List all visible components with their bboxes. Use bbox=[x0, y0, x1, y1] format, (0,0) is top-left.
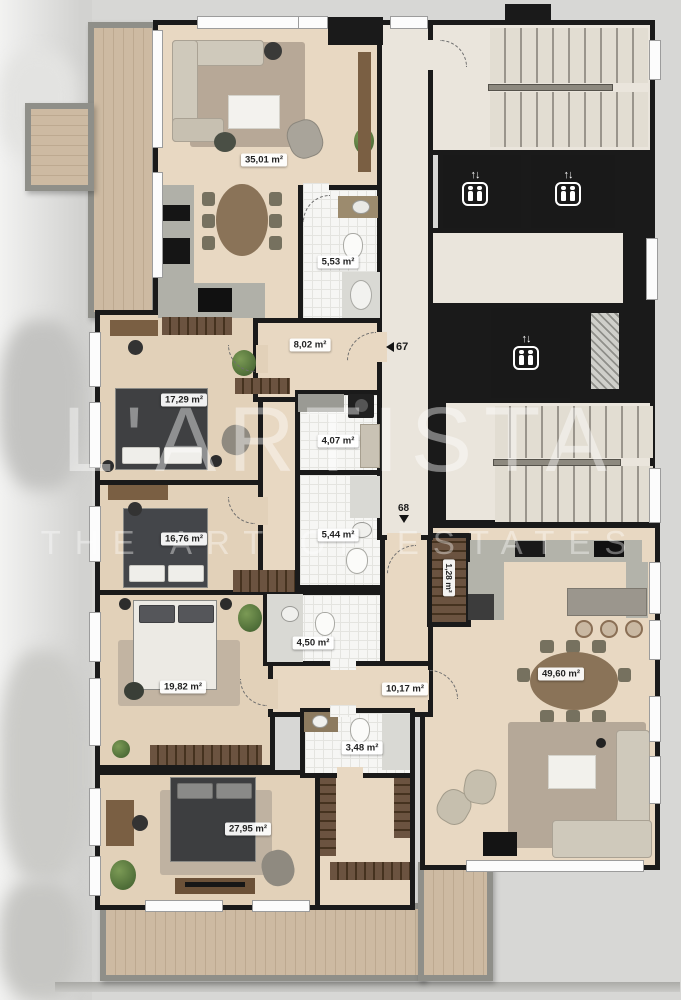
wall-filler bbox=[428, 303, 486, 403]
chair bbox=[540, 640, 554, 653]
person-icon bbox=[570, 191, 575, 201]
kitchen-fridge bbox=[160, 238, 190, 264]
room-area-label: 8,02 m² bbox=[290, 339, 331, 352]
coffee-table bbox=[228, 95, 280, 129]
apartment-68-marker: 68 bbox=[398, 503, 409, 523]
side-table bbox=[264, 42, 282, 60]
pouf bbox=[214, 132, 236, 152]
door-bath68 bbox=[330, 658, 356, 670]
room-area-label: 3,48 m² bbox=[342, 742, 383, 755]
toilet bbox=[315, 612, 335, 636]
shower bbox=[350, 476, 380, 518]
room-area-label: 4,50 m² bbox=[293, 637, 334, 650]
wardrobe bbox=[394, 778, 410, 838]
sideboard bbox=[358, 52, 371, 172]
desk-chair bbox=[128, 340, 143, 355]
blur-blob bbox=[0, 320, 85, 490]
stair-flight bbox=[495, 466, 653, 522]
up-down-arrows-icon: ↑↓ bbox=[471, 170, 480, 181]
nightstand bbox=[220, 598, 232, 610]
shower bbox=[382, 714, 410, 770]
bar-stool bbox=[625, 620, 643, 638]
elevator-cab-icon bbox=[555, 182, 581, 206]
window bbox=[89, 332, 101, 387]
terrace-top-extension bbox=[25, 103, 94, 191]
corridor bbox=[377, 20, 433, 540]
tv bbox=[185, 882, 245, 887]
person-icon bbox=[468, 191, 473, 201]
door-bedroom68-2 bbox=[337, 767, 363, 779]
chair bbox=[618, 668, 631, 682]
elevator-icon: ↑↓ bbox=[462, 170, 488, 206]
room-area-label: 1,28 m² bbox=[443, 559, 455, 596]
cooktop bbox=[198, 288, 232, 312]
window bbox=[646, 238, 658, 300]
terrace-bottom bbox=[100, 903, 425, 981]
floor-lamp bbox=[596, 738, 606, 748]
stair-handrail bbox=[488, 84, 613, 91]
kitchen-sink bbox=[160, 205, 190, 221]
counter bbox=[298, 394, 344, 412]
room-area-label: 49,60 m² bbox=[538, 668, 584, 681]
wall-filler bbox=[430, 398, 446, 525]
stair-handrail bbox=[493, 459, 621, 466]
window bbox=[89, 856, 101, 896]
stair-flight bbox=[490, 28, 648, 83]
bed bbox=[170, 777, 256, 862]
stairwell-bottom bbox=[440, 398, 655, 525]
plant bbox=[112, 740, 130, 758]
door-stairwell bbox=[428, 40, 440, 70]
toilet bbox=[350, 718, 370, 743]
chair bbox=[269, 214, 282, 228]
terrace-bottom-right bbox=[418, 862, 493, 981]
window bbox=[649, 620, 661, 660]
bed bbox=[123, 508, 208, 588]
nightstand bbox=[119, 598, 131, 610]
vent-shaft bbox=[588, 310, 622, 392]
sink bbox=[281, 606, 299, 622]
person-icon bbox=[528, 355, 533, 365]
window bbox=[649, 562, 661, 614]
pouf bbox=[124, 682, 144, 700]
sink bbox=[352, 200, 370, 214]
desk bbox=[108, 485, 168, 500]
door-bedroom67-2 bbox=[256, 497, 268, 525]
blur-blob bbox=[0, 650, 88, 880]
window bbox=[89, 788, 101, 846]
shower-tray bbox=[350, 280, 372, 310]
room-area-label: 27,95 m² bbox=[225, 823, 271, 836]
chair bbox=[202, 192, 215, 206]
room-area-label: 17,29 m² bbox=[161, 394, 207, 407]
door-apt68 bbox=[387, 533, 421, 545]
window bbox=[649, 756, 661, 804]
elevator-cab-icon bbox=[513, 346, 539, 370]
kitchen-island bbox=[567, 588, 647, 616]
floor-plan: ↑↓ ↑↓ ↑↓ bbox=[0, 0, 681, 1000]
window bbox=[89, 506, 101, 562]
apartment-67-marker: 67 bbox=[386, 341, 408, 353]
chair bbox=[202, 214, 215, 228]
sofa bbox=[552, 820, 652, 858]
door-bedroom67-1 bbox=[256, 345, 268, 373]
window bbox=[649, 696, 661, 742]
desk bbox=[110, 320, 158, 336]
washer-door bbox=[355, 399, 368, 412]
chair bbox=[592, 640, 606, 653]
chair bbox=[517, 668, 530, 682]
nightstand bbox=[102, 460, 114, 472]
terrace-slider bbox=[152, 172, 163, 278]
stairwell-top bbox=[428, 20, 655, 155]
room-area-label: 16,76 m² bbox=[161, 533, 207, 546]
room-area-label: 10,17 m² bbox=[382, 683, 428, 696]
room-area-label: 4,07 m² bbox=[318, 435, 359, 448]
terrace-slider bbox=[152, 30, 163, 148]
apartment-number: 67 bbox=[396, 341, 408, 353]
terrace-top bbox=[88, 22, 158, 318]
dining-table bbox=[530, 652, 618, 710]
window bbox=[89, 402, 101, 468]
oven bbox=[468, 594, 494, 620]
elevator-lobby bbox=[428, 228, 628, 308]
coffee-table bbox=[548, 755, 596, 789]
elevator-icon: ↑↓ bbox=[513, 334, 539, 370]
bed bbox=[133, 600, 217, 690]
room-area-label: 35,01 m² bbox=[241, 154, 287, 167]
toilet bbox=[346, 548, 368, 574]
cooktop bbox=[594, 541, 624, 557]
kitchen-sink bbox=[515, 541, 545, 557]
plant bbox=[110, 860, 136, 890]
window bbox=[197, 16, 301, 29]
desk-chair bbox=[132, 815, 148, 831]
desk bbox=[106, 800, 134, 846]
elevator-cab-icon bbox=[462, 182, 488, 206]
wall-filler bbox=[328, 17, 383, 45]
nightstand bbox=[210, 455, 222, 467]
person-icon bbox=[561, 191, 566, 201]
arrow-left-icon bbox=[386, 342, 394, 352]
door-bath67 bbox=[303, 183, 329, 195]
wardrobe bbox=[320, 778, 336, 856]
window bbox=[89, 612, 101, 662]
arrow-down-icon bbox=[399, 515, 409, 523]
bottom-shadow bbox=[55, 982, 680, 992]
up-down-arrows-icon: ↑↓ bbox=[564, 170, 573, 181]
door-bedroom68-1 bbox=[266, 679, 278, 709]
wardrobe bbox=[162, 317, 232, 335]
wall-filler bbox=[615, 150, 655, 233]
door-wc68 bbox=[330, 705, 356, 717]
window bbox=[298, 16, 328, 29]
cabinet bbox=[360, 424, 380, 468]
tv-wall bbox=[483, 832, 517, 856]
console bbox=[235, 378, 290, 394]
window bbox=[649, 468, 661, 523]
dining-table bbox=[216, 184, 268, 256]
plant bbox=[238, 604, 262, 632]
terrace-slider bbox=[466, 860, 644, 872]
room-area-label: 19,82 m² bbox=[160, 681, 206, 694]
terrace-slider bbox=[145, 900, 223, 912]
stair-flight bbox=[490, 92, 648, 147]
shower bbox=[267, 594, 303, 662]
wardrobe bbox=[330, 862, 410, 880]
room-area-label: 5,53 m² bbox=[318, 256, 359, 269]
desk-chair bbox=[128, 502, 142, 516]
bar-stool bbox=[575, 620, 593, 638]
bar-stool bbox=[600, 620, 618, 638]
sink bbox=[312, 715, 328, 728]
person-icon bbox=[519, 355, 524, 365]
chair bbox=[269, 236, 282, 250]
room-area-label: 5,44 m² bbox=[318, 529, 359, 542]
terrace-slider bbox=[252, 900, 310, 912]
person-icon bbox=[477, 191, 482, 201]
bookshelf bbox=[150, 745, 262, 765]
stair-flight bbox=[495, 406, 653, 458]
elevator-icon: ↑↓ bbox=[555, 170, 581, 206]
chair bbox=[269, 192, 282, 206]
window bbox=[390, 16, 428, 29]
up-down-arrows-icon: ↑↓ bbox=[522, 334, 531, 345]
chair bbox=[202, 236, 215, 250]
bookshelf bbox=[233, 570, 295, 592]
window bbox=[649, 40, 661, 80]
apartment-number: 68 bbox=[398, 503, 409, 514]
window bbox=[89, 678, 101, 746]
